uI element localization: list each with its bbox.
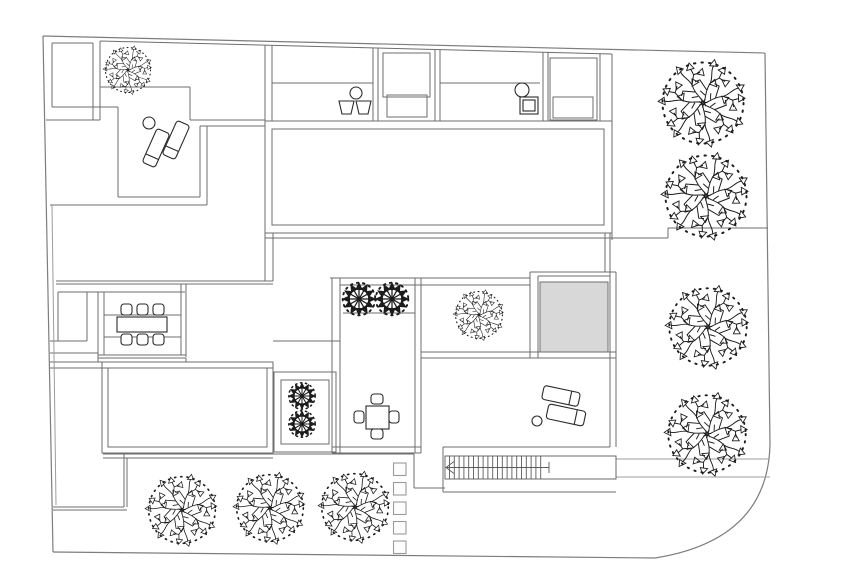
tree-icon xyxy=(656,53,754,153)
storage-unit-a2 xyxy=(387,95,427,117)
tree-icon xyxy=(659,146,757,246)
planter-pot xyxy=(339,101,354,114)
walls xyxy=(46,41,768,510)
square-table-chair xyxy=(389,411,399,423)
pool-inner xyxy=(272,129,604,225)
square-table-chair xyxy=(371,429,383,439)
living-room-inner xyxy=(108,368,267,447)
tree-icon xyxy=(102,42,156,97)
tree-icon xyxy=(317,466,397,548)
stepping-stone xyxy=(394,502,407,515)
shrub-icon xyxy=(289,411,315,437)
stepping-stone xyxy=(394,541,407,554)
walkway-line xyxy=(52,205,56,505)
lounger-frame xyxy=(546,404,586,427)
storage-unit-b xyxy=(550,58,597,120)
shrub-icon xyxy=(289,383,315,409)
dining-chair xyxy=(137,334,148,345)
stepping-stone xyxy=(394,522,407,535)
dining-chair xyxy=(153,334,164,345)
gray-pad xyxy=(540,282,608,352)
side-table xyxy=(532,416,542,426)
square-table-chair xyxy=(371,394,383,404)
shrub-icon xyxy=(343,283,376,316)
grill-inner xyxy=(523,100,535,111)
boundary-line xyxy=(765,53,770,444)
lounger-frame xyxy=(541,385,580,406)
stairs xyxy=(445,456,616,479)
grill-circle xyxy=(515,83,529,97)
living-room-outer xyxy=(102,362,273,453)
tree-icon xyxy=(144,469,224,551)
boundary-line xyxy=(655,444,770,558)
dining-chair xyxy=(137,304,148,315)
planter-room-outer xyxy=(274,372,336,452)
square-table xyxy=(366,406,389,429)
boundary-line xyxy=(43,36,53,552)
shrub-icon xyxy=(376,283,409,316)
stepping-stone xyxy=(394,463,407,476)
dining-chair xyxy=(153,304,164,315)
stepping-stone xyxy=(394,483,407,496)
pool-outer xyxy=(265,121,612,233)
lounger xyxy=(541,385,580,406)
tree-icon xyxy=(452,286,508,344)
furniture xyxy=(104,83,586,439)
site-boundary xyxy=(43,36,770,558)
planter-room-inner xyxy=(281,380,329,444)
dining-table xyxy=(117,317,167,332)
tree-icon xyxy=(663,387,756,482)
site-plan-svg xyxy=(0,0,860,573)
storage-unit-a xyxy=(383,53,430,97)
tree-icon xyxy=(664,280,757,375)
trees xyxy=(102,42,757,551)
storage-unit-b2 xyxy=(553,97,593,118)
lounger xyxy=(546,404,586,427)
tree-icon xyxy=(232,467,312,549)
planter-pot xyxy=(356,101,371,114)
dining-chair xyxy=(121,334,132,345)
square-table-chair xyxy=(354,411,364,423)
side-table xyxy=(143,117,155,129)
planter-circle xyxy=(350,87,362,99)
site-plan-canvas xyxy=(0,0,860,573)
boundary-line xyxy=(43,36,765,53)
dining-chair xyxy=(121,304,132,315)
stepping-stones xyxy=(394,463,407,554)
boundary-line xyxy=(53,552,655,558)
